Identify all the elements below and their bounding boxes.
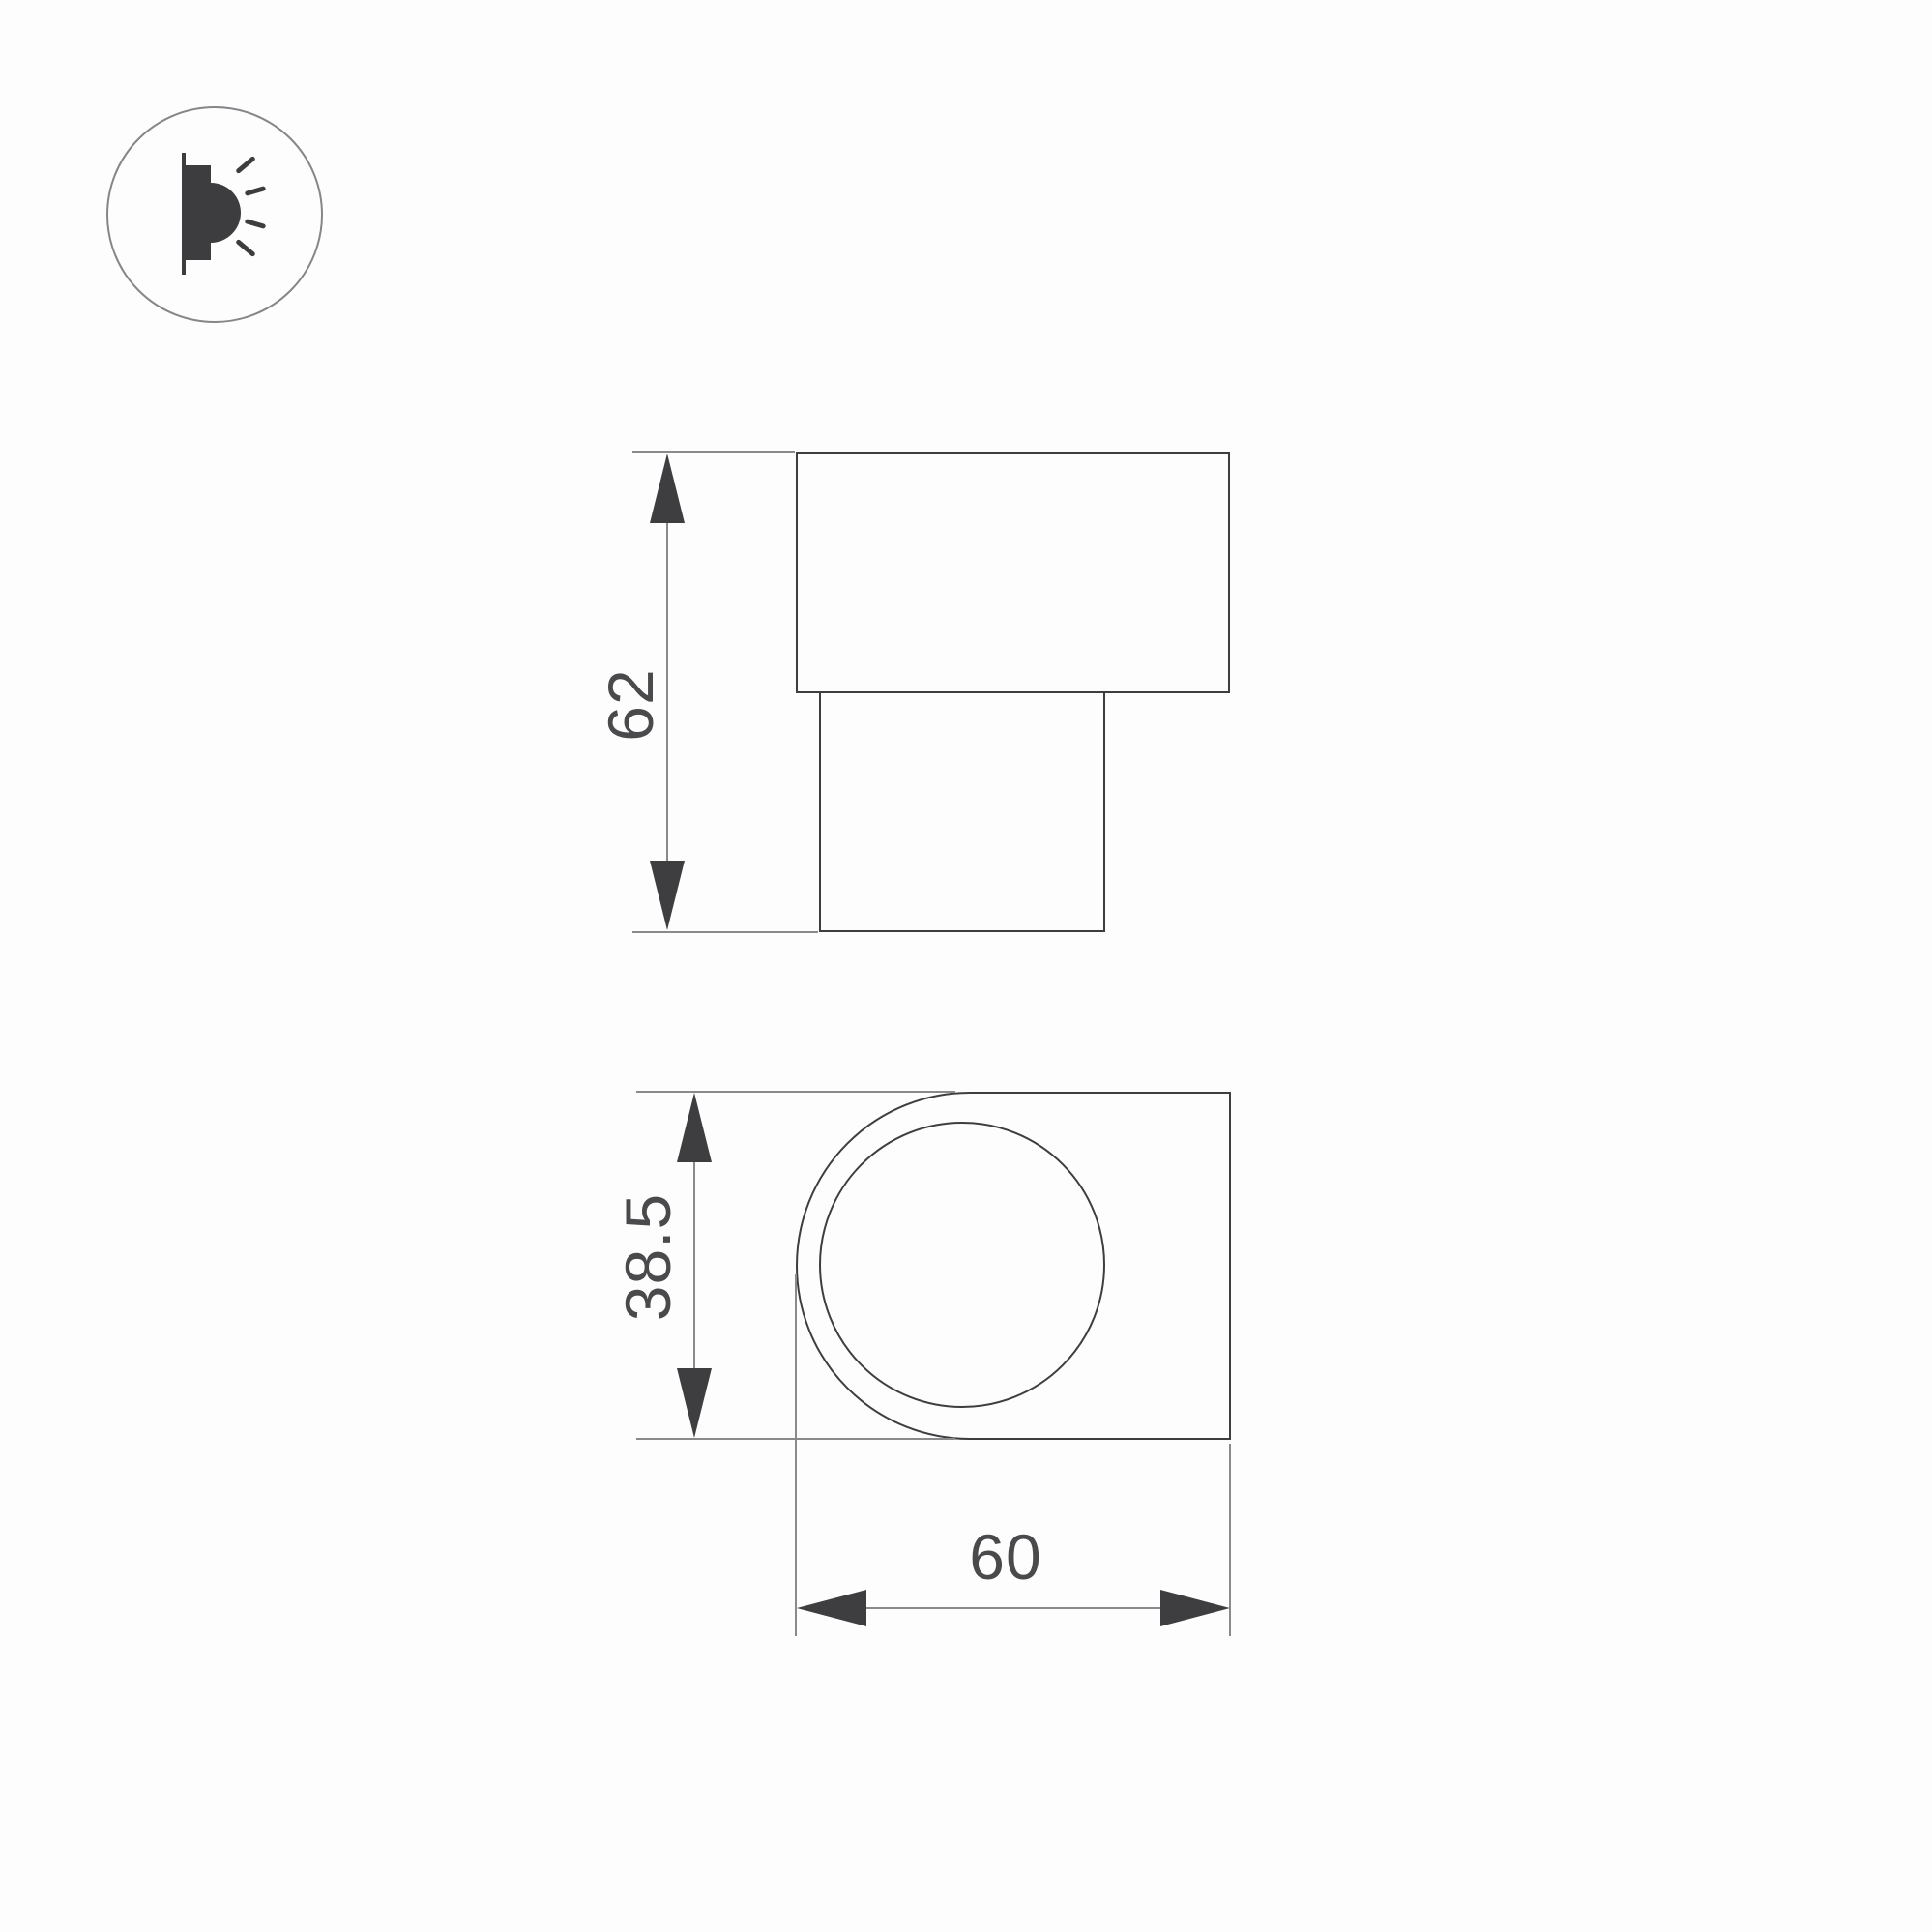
extension-line xyxy=(1229,1444,1231,1636)
drawing-canvas: 62 38.5 60 xyxy=(0,0,1932,1932)
arrowhead-up xyxy=(677,1093,712,1162)
light-ray-icon xyxy=(245,186,267,196)
light-ray-icon xyxy=(235,156,256,174)
dimension-label-height-side: 38.5 xyxy=(611,1193,685,1321)
light-ray-icon xyxy=(235,239,256,257)
arrowhead-up xyxy=(650,454,685,523)
lamp-lens-icon xyxy=(211,183,241,243)
arrowhead-right xyxy=(1160,1590,1230,1626)
front-view-head-rect xyxy=(796,452,1230,693)
extension-line xyxy=(632,451,795,453)
dimension-label-height-front: 62 xyxy=(594,668,667,741)
arrowhead-left xyxy=(797,1590,866,1626)
dimension-label-width-side: 60 xyxy=(969,1520,1041,1594)
arrowhead-down xyxy=(677,1368,712,1438)
dimension-line xyxy=(693,1160,695,1369)
wall-lamp-icon xyxy=(106,106,323,323)
extension-line xyxy=(632,931,818,933)
dimension-line xyxy=(861,1607,1166,1609)
extension-line xyxy=(795,1274,797,1636)
light-ray-icon xyxy=(245,219,267,229)
side-view-body xyxy=(796,1092,1231,1440)
lamp-body-icon xyxy=(186,165,211,260)
front-view-base-rect xyxy=(819,693,1105,932)
extension-line xyxy=(636,1091,955,1093)
side-view-lens-circle xyxy=(819,1122,1105,1408)
arrowhead-down xyxy=(650,861,685,930)
